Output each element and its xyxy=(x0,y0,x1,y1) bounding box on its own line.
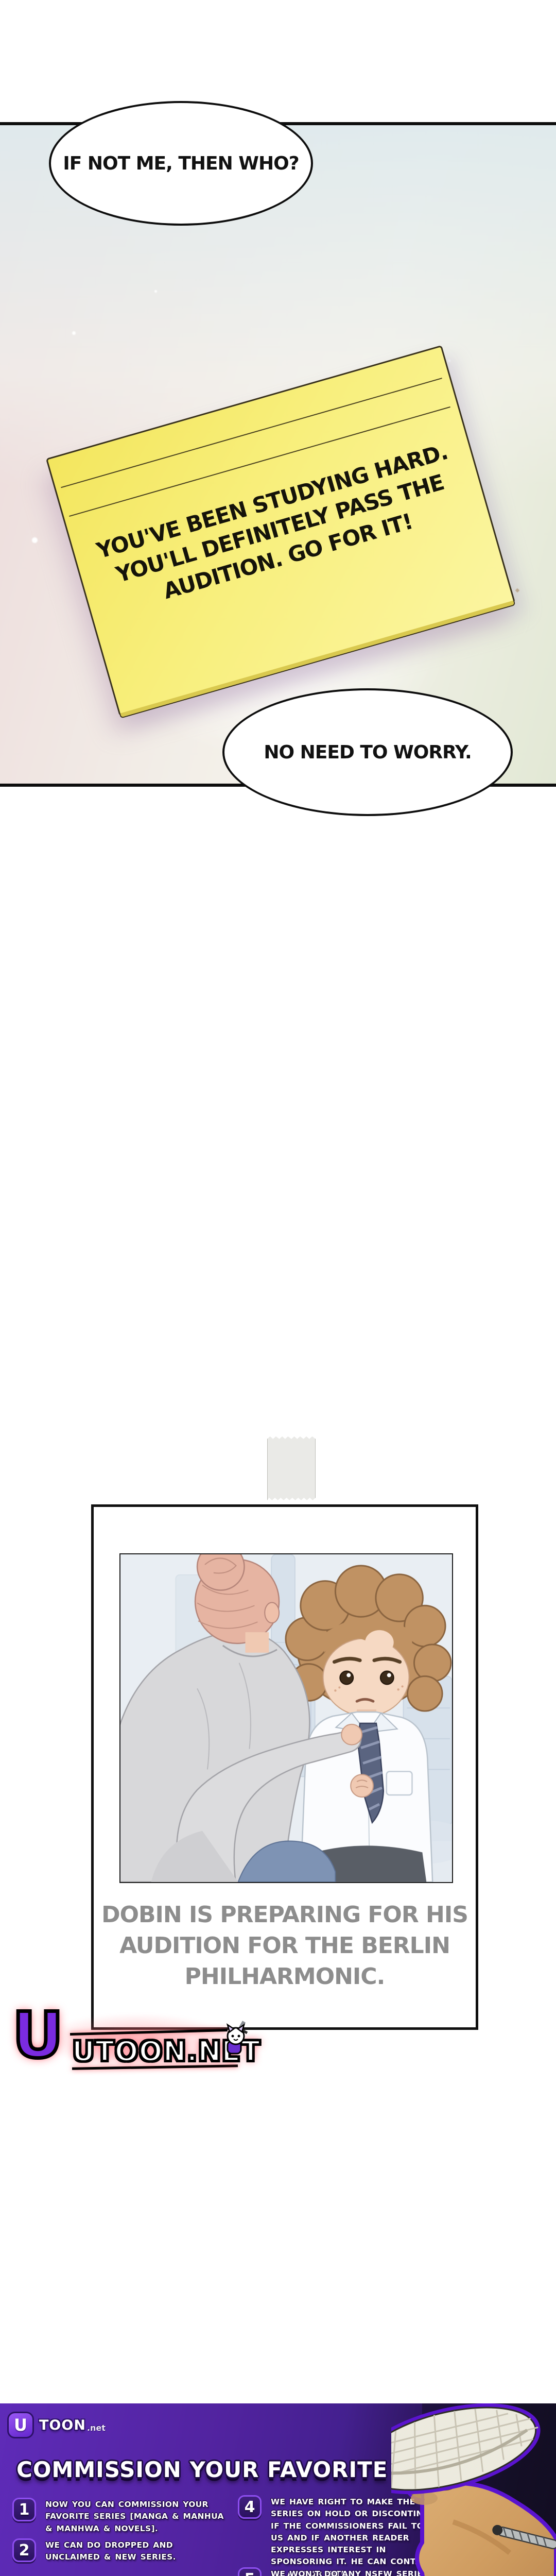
item-text: WE CAN DO DROPPED AND UNCLAIMED & NEW SE… xyxy=(45,2538,229,2564)
speech-bubble-1-text: IF NOT ME, THEN WHO? xyxy=(63,153,299,174)
banner-logo-suffix: .net xyxy=(87,2423,106,2433)
photo-caption: DOBIN IS PREPARING FOR HIS AUDITION FOR … xyxy=(94,1900,476,1992)
webtoon-page: IF NOT ME, THEN WHO? YOU'VE BEEN STUDYIN… xyxy=(0,0,556,2576)
sparkle-dot xyxy=(154,290,157,293)
banner-logo-text: TOON xyxy=(39,2417,86,2433)
banner-item-2: 2 WE CAN DO DROPPED AND UNCLAIMED & NEW … xyxy=(12,2538,229,2564)
speech-bubble-2: NO NEED TO WORRY. xyxy=(222,688,513,816)
tape-strip xyxy=(267,1436,316,1500)
utoon-badge-icon: U xyxy=(7,2412,34,2438)
photo-illustration xyxy=(119,1553,453,1883)
utoon-watermark[interactable]: U UTOON.NET xyxy=(12,2006,265,2078)
mascot-icon xyxy=(220,2021,251,2058)
item-number-badge: 2 xyxy=(12,2538,36,2562)
banner-item-1: 1 NOW YOU CAN COMMISSION YOUR FAVORITE S… xyxy=(12,2498,229,2535)
sparkle-dot xyxy=(72,331,76,335)
item-number-badge: 1 xyxy=(12,2498,36,2521)
item-text: NOW YOU CAN COMMISSION YOUR FAVORITE SER… xyxy=(45,2498,229,2535)
banner-title: COMMISSION YOUR FAVORITE SERIES xyxy=(16,2457,397,2482)
polaroid-frame: DOBIN IS PREPARING FOR HIS AUDITION FOR … xyxy=(91,1504,478,2030)
speech-bubble-1: IF NOT ME, THEN WHO? xyxy=(49,101,313,226)
item-number-badge: 5 xyxy=(238,2567,262,2576)
dog-image xyxy=(391,2403,556,2576)
commission-banner[interactable]: U TOON .net COMMISSION YOUR FAVORITE SER… xyxy=(0,2403,556,2576)
sparkle-dot xyxy=(448,360,450,362)
speck-dot xyxy=(515,588,519,592)
photo-drawing xyxy=(120,1554,452,1882)
sparkle-dot xyxy=(32,537,38,543)
speech-bubble-2-text: NO NEED TO WORRY. xyxy=(264,742,471,763)
item-number-badge: 4 xyxy=(238,2495,262,2519)
banner-logo[interactable]: U TOON .net xyxy=(7,2412,106,2438)
utoon-u-logo-icon: U xyxy=(12,1999,63,2072)
